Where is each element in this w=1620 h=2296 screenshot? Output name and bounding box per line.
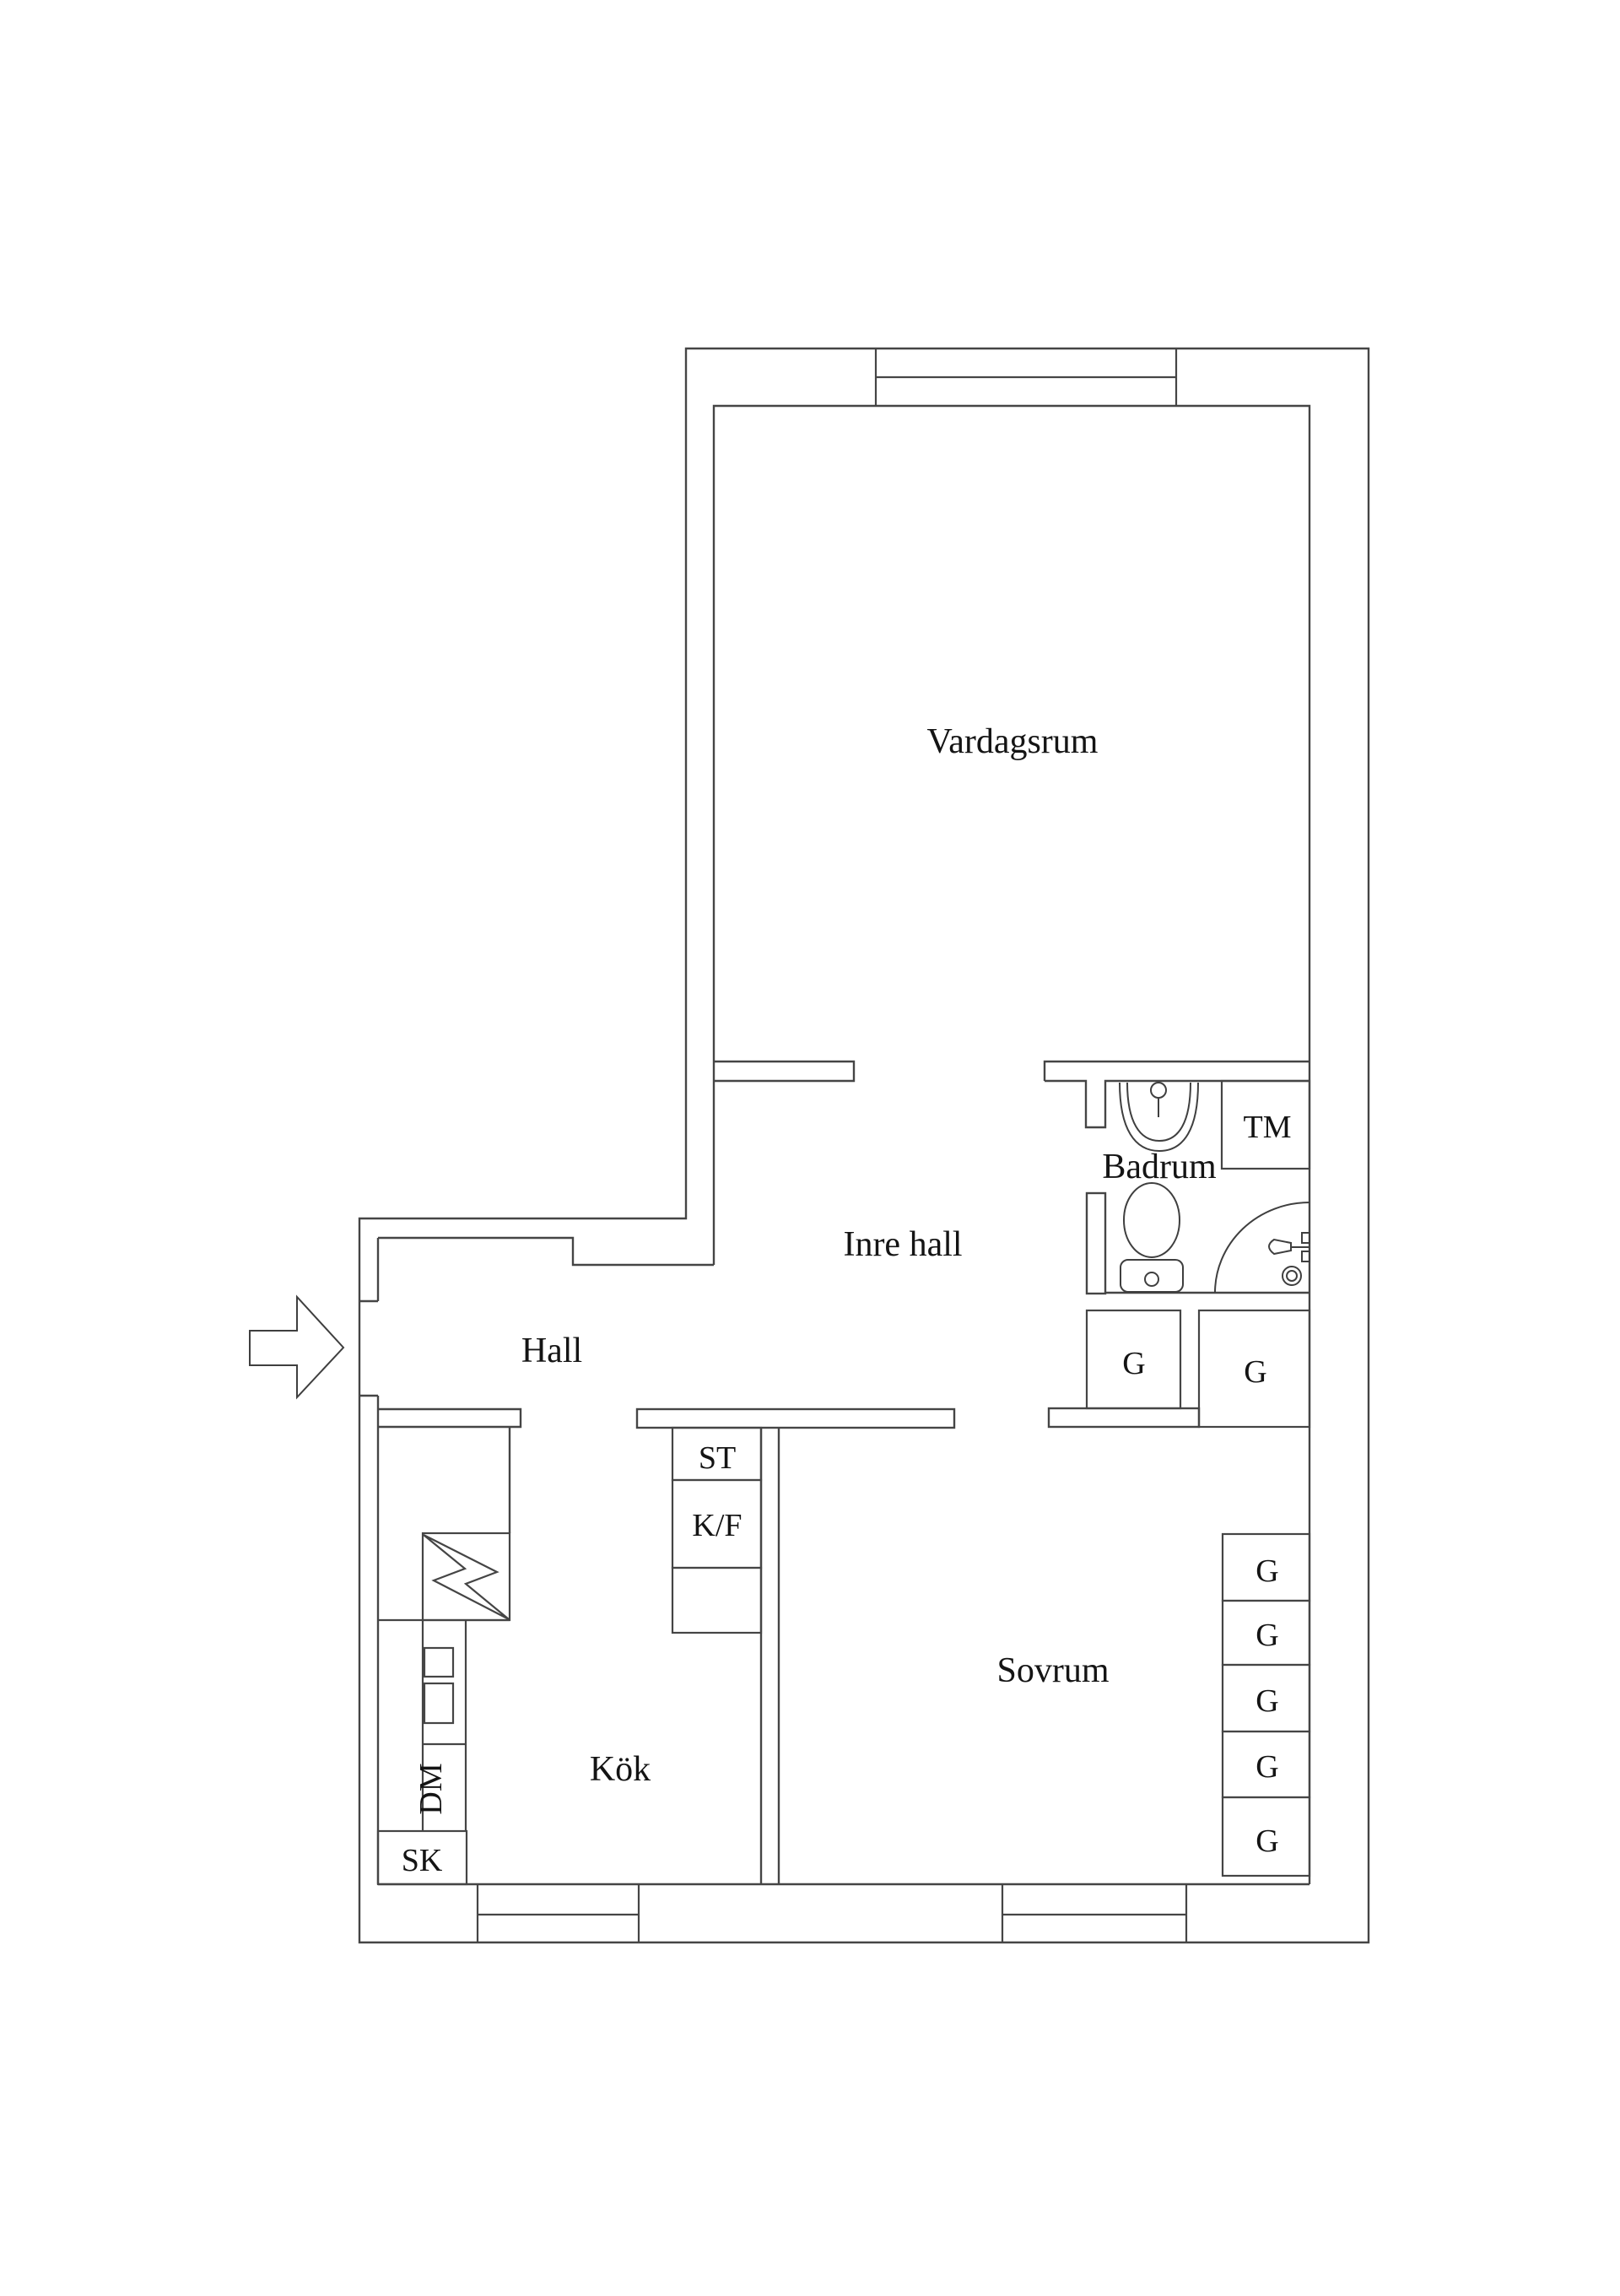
outer-wall [359,348,1369,1942]
wardrobe-label: G [1255,1618,1278,1653]
wardrobe-label: G [1255,1553,1278,1589]
room-label-kok: Kök [590,1750,651,1789]
kitchen-bedroom-wall [761,1428,779,1884]
fridge-freezer-label: K/F [692,1508,742,1543]
entrance-arrow-icon [250,1297,343,1397]
walls [359,348,1369,1942]
bathroom-left-wall [1087,1193,1105,1294]
wardrobe-label: G [1122,1346,1145,1381]
lightning-icon [424,1535,509,1619]
kitchen-top-wall [378,1409,521,1533]
cleaning-closet-label: ST [699,1440,736,1476]
room-label-sovrum: Sovrum [996,1651,1109,1690]
shower-bracket [1302,1233,1309,1243]
floor-plan-svg: Vardagsrum Badrum TM Inre hall Hall G G … [0,0,1620,2292]
washing-machine-label: TM [1244,1110,1292,1145]
kitchen-sink-icon [424,1648,453,1677]
left-wall-upper-jamb [359,1238,378,1301]
inner-hall-bottom-wall [637,1409,954,1428]
bedroom-top-wall [1049,1408,1199,1427]
wardrobe-label: G [1255,1683,1278,1719]
shower-bracket [1302,1251,1309,1261]
pantry-box [672,1568,761,1633]
livingroom-bottom-wall-stub [714,1062,854,1081]
room-label-hall: Hall [521,1332,582,1370]
floor-drain-icon [1282,1267,1301,1285]
toilet-flush-button [1145,1272,1158,1286]
dishwasher-label: DM [413,1763,449,1814]
wardrobe-label: G [1255,1823,1278,1859]
room-label-badrum: Badrum [1102,1148,1217,1186]
boxes [378,1081,1309,1884]
labels: Vardagsrum Badrum TM Inre hall Hall G G … [402,722,1292,1878]
window-symbol-top [876,348,1176,406]
floor-drain-icon-inner [1287,1271,1297,1281]
window-symbol-kitchen [478,1884,639,1942]
room-label-vardagsrum: Vardagsrum [927,722,1099,761]
room-label-inre-hall: Inre hall [843,1225,962,1264]
windows [478,348,1186,1942]
kitchen-sink-icon [424,1683,453,1723]
toilet-icon [1124,1183,1180,1257]
entrance [250,1297,343,1397]
hall-top-wall [378,1238,714,1265]
cupboard-label: SK [402,1843,443,1878]
stove-box [423,1533,510,1620]
left-wall-lower-jamb [359,1396,378,1884]
wardrobe-label: G [1255,1749,1278,1785]
toilet-tank [1120,1260,1183,1292]
wardrobe-label: G [1244,1354,1266,1390]
floor-plan: Vardagsrum Badrum TM Inre hall Hall G G … [0,0,1620,2292]
window-symbol-bedroom [1002,1884,1186,1942]
sink-faucet-icon [1151,1083,1166,1098]
